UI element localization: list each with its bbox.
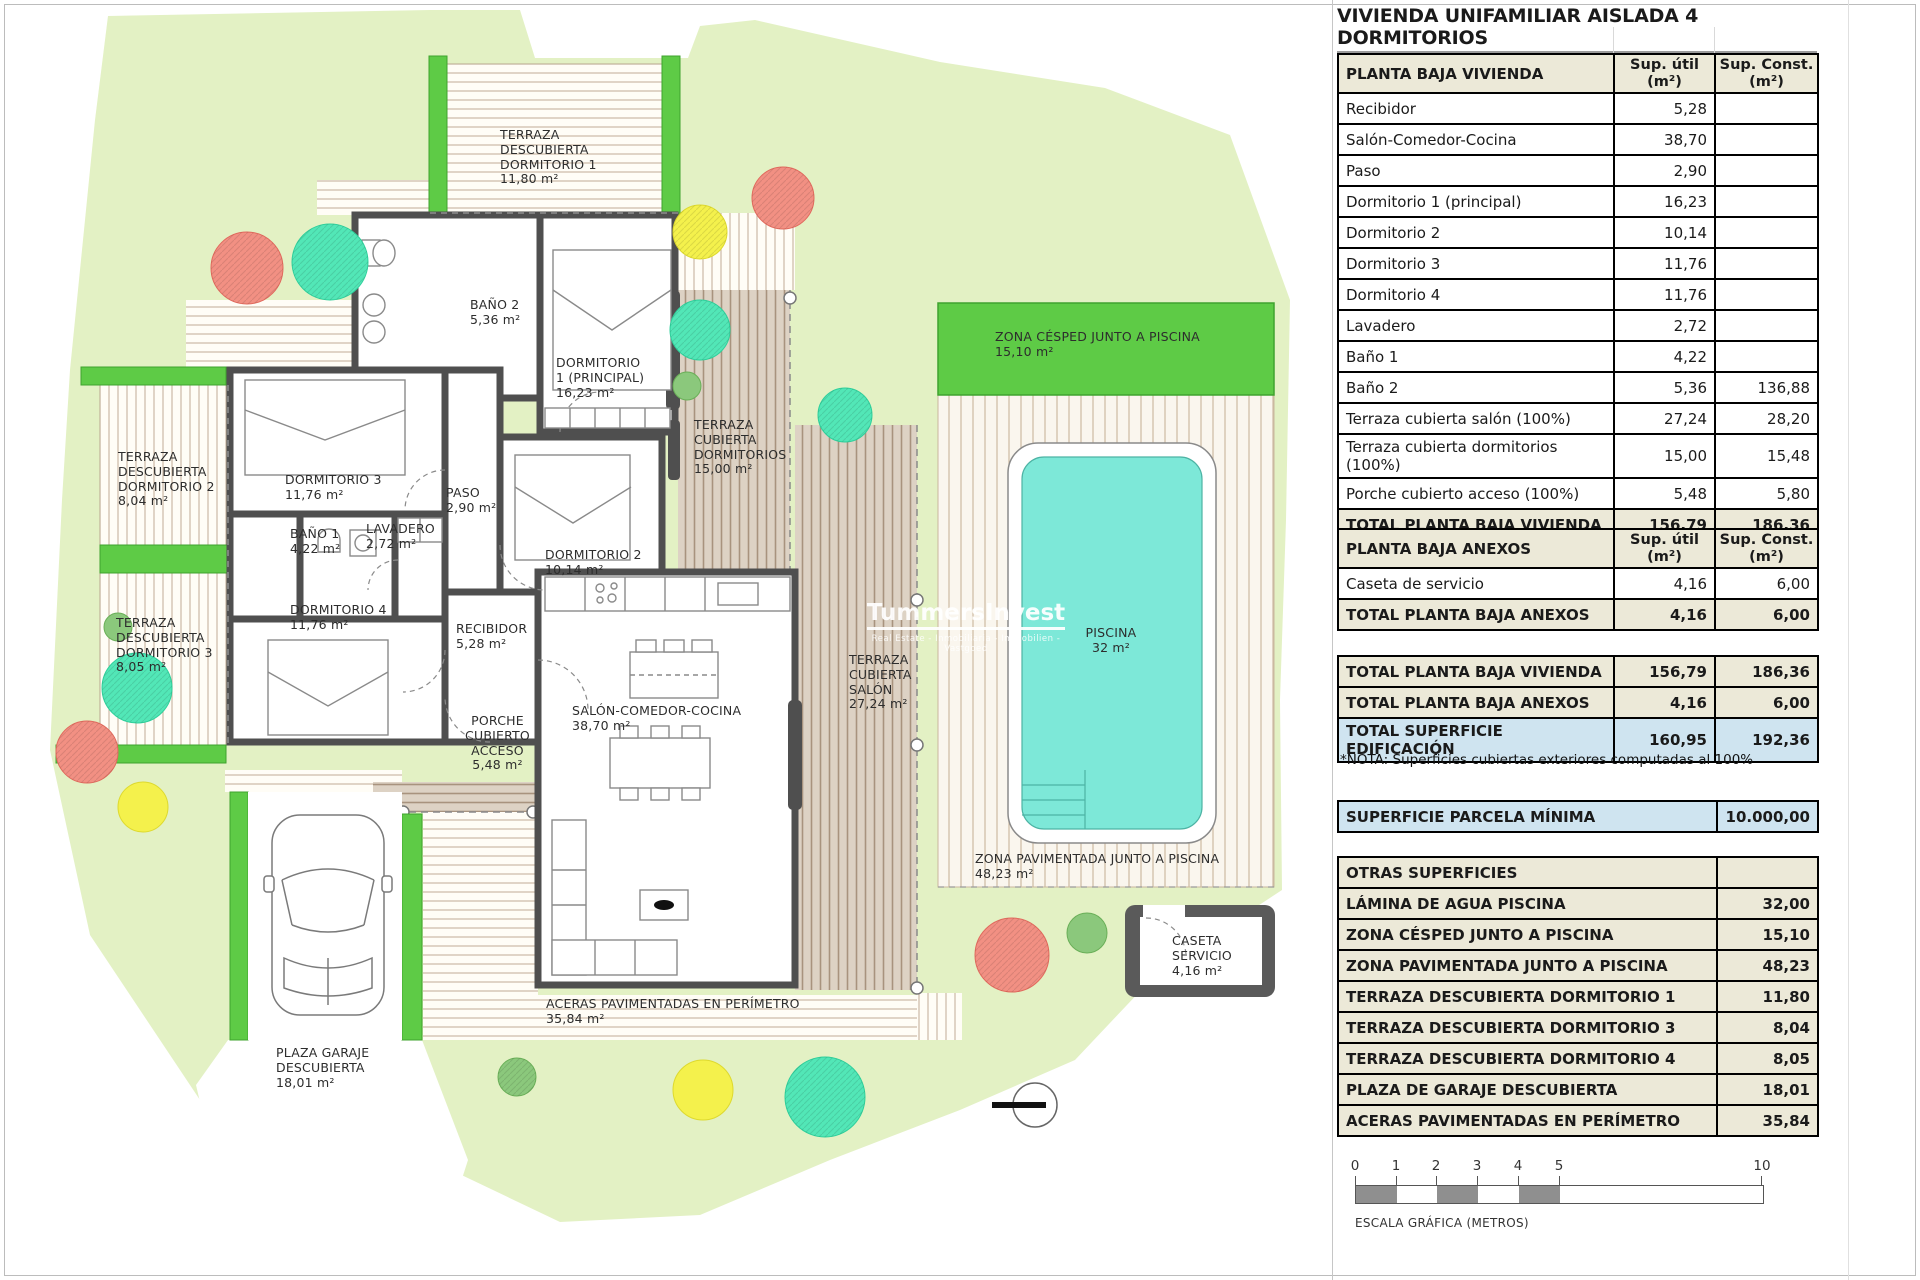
tree xyxy=(56,721,118,783)
col-header-sup-const: Sup. Const. (m²) xyxy=(1715,54,1818,93)
aceras-band-left xyxy=(423,812,538,995)
col-header-sup-util: Sup. útil (m²) xyxy=(1614,529,1715,568)
table-row: Baño 25,36136,88 xyxy=(1338,372,1818,403)
table-row: Paso2,90 xyxy=(1338,155,1818,186)
table-row: TERRAZA DESCUBIERTA DORMITORIO 111,80 xyxy=(1338,981,1818,1012)
label-bano1: BAÑO 1 4,22 m² xyxy=(290,527,340,557)
tree xyxy=(498,1058,536,1096)
sheet-right-margin-line xyxy=(1848,0,1849,1280)
table-total-row: TOTAL PLANTA BAJA ANEXOS4,166,00 xyxy=(1338,599,1818,630)
room-paso xyxy=(445,370,500,592)
tree xyxy=(670,300,730,360)
table-row: ZONA PAVIMENTADA JUNTO A PISCINA48,23 xyxy=(1338,950,1818,981)
label-porche: PORCHE CUBIERTO ACCESO 5,48 m² xyxy=(445,714,550,773)
plan-sheet: { "sheet": { "title": "VIVIENDA UNIFAMIL… xyxy=(0,0,1920,1280)
label-terraza-cub-salon: TERRAZA CUBIERTA SALÓN 27,24 m² xyxy=(849,653,912,712)
label-dorm1: DORMITORIO 1 (PRINCIPAL) 16,23 m² xyxy=(556,356,644,400)
label-zona-pavimentada: ZONA PAVIMENTADA JUNTO A PISCINA 48,23 m… xyxy=(975,852,1219,882)
table-row-highlight: SUPERFICIE PARCELA MÍNIMA10.000,00 xyxy=(1338,801,1818,832)
kitchen-counter xyxy=(545,577,790,611)
aceras-patch xyxy=(186,300,355,368)
label-piscina: PISCINA 32 m² xyxy=(1055,626,1167,656)
nota-text: *NOTA: Superficies cubiertas exteriores … xyxy=(1340,752,1753,768)
label-caseta: CASETA SERVICIO 4,16 m² xyxy=(1172,934,1232,978)
table-row: Baño 14,22 xyxy=(1338,341,1818,372)
bed-dorm2 xyxy=(515,455,630,560)
scale-bar: 0 1 2 3 4 5 10 ESCALA GRÁFICA (METROS) xyxy=(1355,1158,1775,1238)
scale-tick: 3 xyxy=(1473,1158,1482,1174)
table-header: PLANTA BAJA VIVIENDA xyxy=(1338,54,1614,93)
col-header-sup-const: Sup. Const. (m²) xyxy=(1715,529,1818,568)
table-row: Dormitorio 411,76 xyxy=(1338,279,1818,310)
table-row: Dormitorio 210,14 xyxy=(1338,217,1818,248)
table-header: PLANTA BAJA ANEXOS xyxy=(1338,529,1614,568)
scale-tick: 4 xyxy=(1514,1158,1523,1174)
label-terraza-desc-dorm3: TERRAZA DESCUBIERTA DORMITORIO 3 8,05 m² xyxy=(116,616,213,675)
tv-unit xyxy=(640,890,688,920)
table-row: Recibidor5,28 xyxy=(1338,93,1818,124)
table-row: ZONA CÉSPED JUNTO A PISCINA15,10 xyxy=(1338,919,1818,950)
table-row: Lavadero2,72 xyxy=(1338,310,1818,341)
table-row: Porche cubierto acceso (100%)5,485,80 xyxy=(1338,478,1818,509)
car xyxy=(264,815,392,1015)
scale-bar-caption: ESCALA GRÁFICA (METROS) xyxy=(1355,1216,1529,1230)
bed-dorm3 xyxy=(245,380,405,475)
label-lavadero: LAVADERO 2,72 m² xyxy=(366,522,435,552)
label-paso: PASO 2,90 m² xyxy=(446,486,496,516)
table-row: Dormitorio 1 (principal)16,23 xyxy=(1338,186,1818,217)
label-dorm4: DORMITORIO 4 11,76 m² xyxy=(290,603,387,633)
table-resumen-totales: TOTAL PLANTA BAJA VIVIENDA156,79186,36 T… xyxy=(1337,655,1819,763)
floor-plan: TERRAZA DESCUBIERTA DORMITORIO 1 11,80 m… xyxy=(0,0,1345,1280)
scale-tick: 10 xyxy=(1753,1158,1770,1174)
table-row: TOTAL PLANTA BAJA ANEXOS4,166,00 xyxy=(1338,687,1818,718)
label-terraza-desc-dorm2: TERRAZA DESCUBIERTA DORMITORIO 2 8,04 m² xyxy=(118,450,215,509)
table-row: Terraza cubierta dormitorios (100%)15,00… xyxy=(1338,434,1818,478)
scale-bar-rule xyxy=(1355,1185,1764,1204)
table-planta-baja-anexos: PLANTA BAJA ANEXOS Sup. útil (m²) Sup. C… xyxy=(1337,528,1819,631)
bed-dorm4 xyxy=(268,640,388,735)
label-dorm3: DORMITORIO 3 11,76 m² xyxy=(285,473,382,503)
aceras-patch xyxy=(317,180,437,215)
label-plaza-garaje: PLAZA GARAJE DESCUBIERTA 18,01 m² xyxy=(276,1046,369,1090)
tree xyxy=(673,205,727,259)
scale-tick: 1 xyxy=(1392,1158,1401,1174)
tree xyxy=(673,1060,733,1120)
table-row: LÁMINA DE AGUA PISCINA32,00 xyxy=(1338,888,1818,919)
scale-tick: 2 xyxy=(1432,1158,1441,1174)
table-row: TERRAZA DESCUBIERTA DORMITORIO 48,05 xyxy=(1338,1043,1818,1074)
label-dorm2: DORMITORIO 2 10,14 m² xyxy=(545,548,642,578)
tree xyxy=(211,232,283,304)
label-recibidor: RECIBIDOR 5,28 m² xyxy=(456,622,527,652)
label-terraza-desc-dorm1: TERRAZA DESCUBIERTA DORMITORIO 1 11,80 m… xyxy=(500,128,597,187)
wardrobe xyxy=(545,408,670,428)
tree xyxy=(818,388,872,442)
label-aceras: ACERAS PAVIMENTADAS EN PERÍMETRO 35,84 m… xyxy=(546,997,800,1027)
table-row: Caseta de servicio4,166,00 xyxy=(1338,568,1818,599)
aceras-band-corner xyxy=(917,993,962,1040)
page-title: VIVIENDA UNIFAMILIAR AISLADA 4 DORMITORI… xyxy=(1337,5,1817,54)
table-row: Dormitorio 311,76 xyxy=(1338,248,1818,279)
tree xyxy=(975,918,1049,992)
label-zona-cesped: ZONA CÉSPED JUNTO A PISCINA 15,10 m² xyxy=(995,330,1200,360)
label-bano2: BAÑO 2 5,36 m² xyxy=(470,298,520,328)
table-row: TERRAZA DESCUBIERTA DORMITORIO 38,04 xyxy=(1338,1012,1818,1043)
kitchen-island xyxy=(630,640,718,698)
table-row: Salón-Comedor-Cocina38,70 xyxy=(1338,124,1818,155)
table-header-row: OTRAS SUPERFICIES xyxy=(1338,857,1818,888)
col-header-sup-util: Sup. útil (m²) xyxy=(1614,54,1715,93)
gridline xyxy=(1714,27,1715,53)
tree xyxy=(1067,913,1107,953)
label-terraza-cub-dorms: TERRAZA CUBIERTA DORMITORIOS 15,00 m² xyxy=(694,418,786,477)
table-planta-baja-vivienda: PLANTA BAJA VIVIENDA Sup. útil (m²) Sup.… xyxy=(1337,53,1819,541)
label-salon: SALÓN-COMEDOR-COCINA 38,70 m² xyxy=(572,704,741,734)
tree xyxy=(292,224,368,300)
tree xyxy=(673,372,701,400)
tree xyxy=(752,167,814,229)
table-row: TOTAL PLANTA BAJA VIVIENDA156,79186,36 xyxy=(1338,656,1818,687)
scale-tick: 5 xyxy=(1555,1158,1564,1174)
scale-tick: 0 xyxy=(1351,1158,1360,1174)
table-otras-superficies: OTRAS SUPERFICIES LÁMINA DE AGUA PISCINA… xyxy=(1337,856,1819,1137)
gridline xyxy=(1613,27,1614,53)
tree xyxy=(118,782,168,832)
tree xyxy=(785,1057,865,1137)
dining-table xyxy=(610,726,710,800)
table-row: Terraza cubierta salón (100%)27,2428,20 xyxy=(1338,403,1818,434)
table-row: ACERAS PAVIMENTADAS EN PERÍMETRO35,84 xyxy=(1338,1105,1818,1136)
table-parcela-minima: SUPERFICIE PARCELA MÍNIMA10.000,00 xyxy=(1337,800,1819,833)
table-row: PLAZA DE GARAJE DESCUBIERTA18,01 xyxy=(1338,1074,1818,1105)
